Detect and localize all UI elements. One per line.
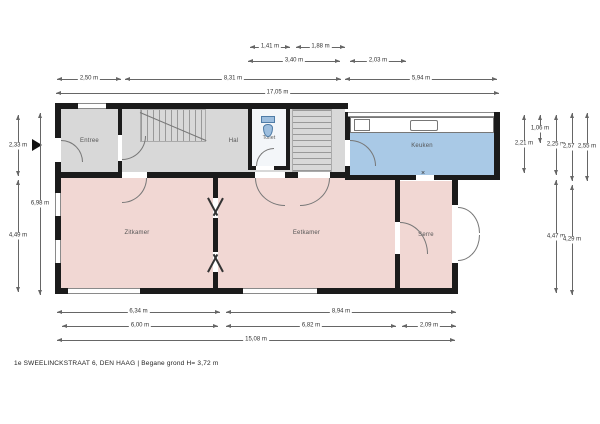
dimension-label: 6,00 m [129, 323, 151, 330]
dimension-label: 1,41 m [259, 44, 281, 51]
dimension-line: 2,55 m [587, 113, 588, 181]
dimension-line: 6,34 m [57, 312, 220, 313]
dimension-line: 17,05 m [56, 93, 499, 94]
dimension-label: 2,03 m [367, 58, 389, 65]
dimension-line: 4,29 m [572, 185, 573, 295]
dimension-label: 3,40 m [283, 58, 305, 65]
dimension-line: 2,09 m [402, 326, 456, 327]
dimension-label: 4,29 m [561, 237, 583, 244]
dimension-label: 8,94 m [330, 309, 352, 316]
dimension-line: 8,94 m [226, 312, 456, 313]
dimension-line: 8,31 m [125, 79, 341, 80]
dimension-label: 2,50 m [78, 76, 100, 83]
dimension-label: 6,34 m [127, 309, 149, 316]
dimension-label: 6,82 m [300, 323, 322, 330]
dimension-line: 4,47 m [556, 180, 557, 293]
floorplan-canvas: EntreeHalToiletKeukenZitkamerEetkamerSer… [0, 0, 600, 424]
dimension-line: 1,06 m [540, 115, 541, 143]
dimension-label: 8,31 m [222, 76, 244, 83]
dimension-line: 6,82 m [226, 326, 396, 327]
caption: 1e SWEELINCKSTRAAT 6, DEN HAAG | Begane … [14, 360, 218, 367]
dimension-label: 17,05 m [265, 90, 291, 97]
dimension-line: 2,50 m [57, 79, 121, 80]
dimension-line: 1,41 m [250, 47, 290, 48]
dimension-label: 5,94 m [410, 76, 432, 83]
dimension-label: 2,21 m [513, 141, 535, 148]
dimension-line: 2,21 m [524, 115, 525, 173]
dimension-label: 6,98 m [29, 201, 51, 208]
dimension-line: 6,98 m [40, 113, 41, 295]
dimension-line: 15,08 m [57, 340, 455, 341]
dimension-label: 1,06 m [529, 126, 551, 133]
dimension-line: 1,88 m [296, 47, 345, 48]
dimension-label: 2,55 m [576, 144, 598, 151]
dimension-label: 4,49 m [7, 233, 29, 240]
dimension-label: 1,88 m [309, 44, 331, 51]
dimension-line: 2,57 m [572, 113, 573, 181]
dimension-label: 15,08 m [243, 337, 269, 344]
dimension-line: 2,25 m [556, 115, 557, 175]
dimension-label: 2,33 m [7, 142, 29, 149]
dimension-line: 3,40 m [248, 61, 340, 62]
dimension-label: 2,09 m [418, 323, 440, 330]
dimension-line: 5,94 m [345, 79, 497, 80]
dimension-line: 4,49 m [18, 180, 19, 292]
dimension-line: 2,03 m [350, 61, 406, 62]
dimension-line: 6,00 m [62, 326, 218, 327]
dimension-line: 2,33 m [18, 115, 19, 176]
